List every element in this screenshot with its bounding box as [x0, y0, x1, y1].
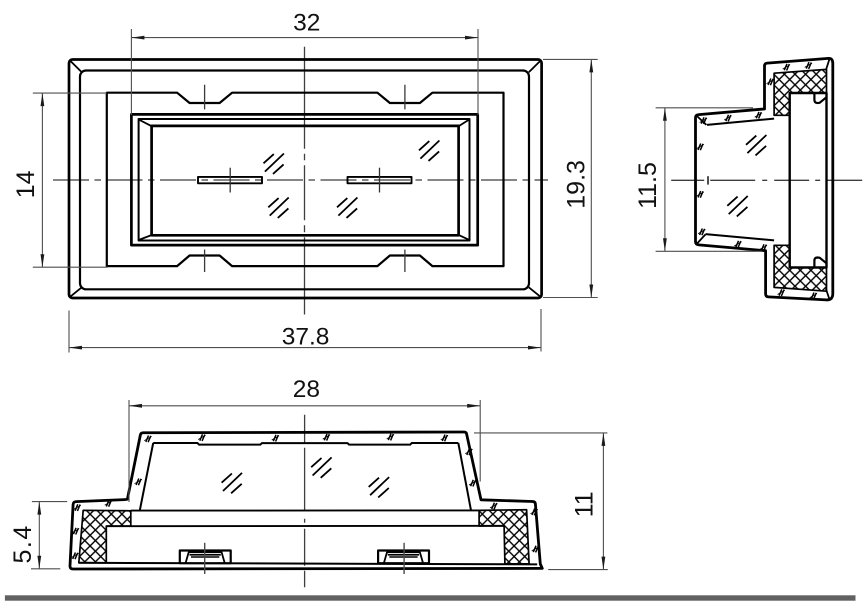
svg-text:11: 11 [571, 491, 599, 517]
svg-text:11.5: 11.5 [634, 162, 662, 209]
svg-text:14: 14 [12, 170, 40, 198]
svg-text:32: 32 [293, 9, 320, 36]
svg-text:19.3: 19.3 [563, 160, 591, 209]
svg-text:37.8: 37.8 [282, 324, 330, 351]
svg-text:28: 28 [293, 376, 320, 403]
svg-text:5.4: 5.4 [9, 524, 37, 563]
